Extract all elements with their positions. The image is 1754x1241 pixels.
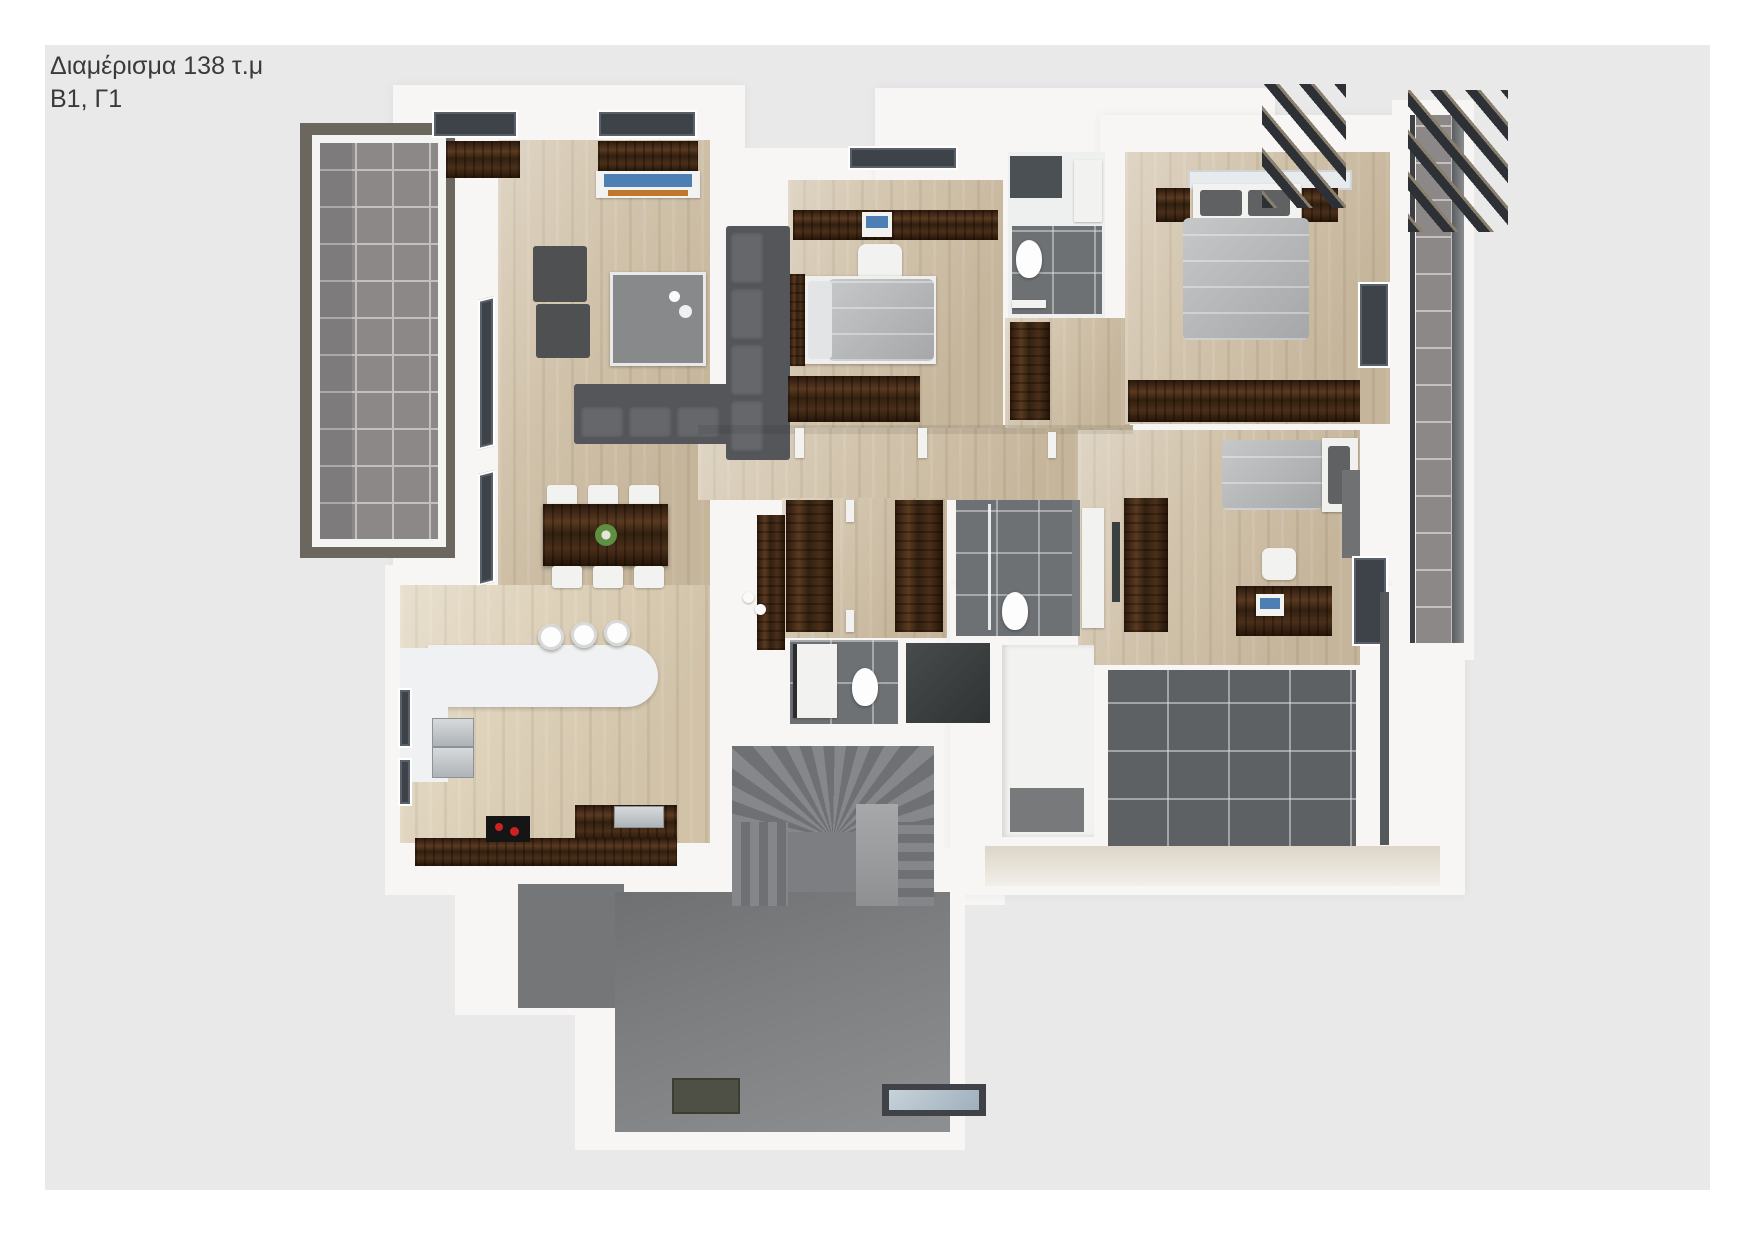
bath1-vanity — [1074, 160, 1102, 222]
dining-chair-6 — [634, 566, 664, 588]
terrace-walkway — [985, 846, 1440, 886]
page-subtitle: Β1, Γ1 — [50, 83, 263, 116]
tv-screen — [604, 174, 692, 187]
roof-access-door — [672, 1078, 740, 1114]
bedroom1-pillow — [808, 281, 832, 359]
cup-2 — [679, 305, 692, 318]
plan-title-block: Διαμέρισμα 138 τ.μ Β1, Γ1 — [50, 50, 263, 116]
sink-room-shade — [1072, 500, 1080, 636]
bedroom1-duvet — [828, 279, 934, 361]
living-west-window-2 — [478, 470, 495, 586]
living-window-left — [432, 110, 518, 138]
stairs-center-wall — [856, 804, 898, 906]
artwork — [608, 190, 688, 196]
bedroom3-laptop — [1256, 594, 1284, 616]
coffee-table — [610, 272, 706, 366]
wall-oven-2 — [432, 747, 474, 778]
wc-vanity — [793, 644, 837, 718]
bedroom3-desk — [1236, 586, 1332, 636]
ottoman-1 — [533, 246, 587, 302]
cup-1 — [669, 291, 680, 302]
bath1-toilet — [1016, 240, 1042, 278]
shower-glass — [988, 504, 991, 630]
kitchen-sink — [614, 806, 664, 828]
bath1-shower — [1010, 156, 1062, 198]
bedroom3-wardrobe — [1124, 498, 1168, 632]
terrace-edge-wall — [1380, 592, 1389, 845]
void-shaft — [906, 643, 990, 723]
pergola-slats-left — [1262, 84, 1346, 208]
skylight-frame — [882, 1084, 986, 1116]
walkin-door-top — [846, 500, 854, 522]
paper-roll-1 — [743, 592, 754, 603]
living-west-window-1 — [478, 296, 495, 450]
bar-stool-3 — [604, 620, 630, 646]
dining-chair-5 — [593, 566, 623, 588]
walkin-door-bottom — [846, 610, 854, 632]
tall-cabinet — [757, 515, 785, 650]
walkin-wardrobe-left — [786, 500, 833, 632]
roof-left — [518, 884, 624, 1008]
bedroom3-chair — [1262, 548, 1296, 580]
bedroom1-headboard — [790, 274, 805, 366]
bedroom3-duvet — [1222, 440, 1322, 510]
master-wardrobe — [1128, 380, 1360, 422]
shower-room-toilet — [1002, 592, 1028, 630]
sink-mirror — [1112, 522, 1120, 602]
walkin-wardrobe-right — [895, 500, 943, 632]
bath1-door — [1012, 300, 1046, 308]
nook-wardrobe — [1010, 322, 1050, 420]
kitchen-window-2 — [398, 758, 412, 806]
master-pillow-1 — [1200, 190, 1242, 216]
page-title: Διαμέρισμα 138 τ.μ — [50, 50, 263, 83]
floor-plan-page: Διαμέρισμα 138 τ.μ Β1, Γ1 — [0, 0, 1754, 1241]
light-well-floor — [1010, 788, 1084, 832]
bedroom1-wardrobe — [788, 376, 920, 422]
bedroom3-shelf — [1342, 470, 1360, 558]
door-leaf-3 — [1048, 432, 1056, 458]
sofa-horizontal — [574, 384, 730, 444]
paper-roll-2 — [755, 604, 766, 615]
master-nightstand-left — [1156, 188, 1190, 222]
table-plant — [595, 524, 617, 546]
skylight-glass — [889, 1090, 979, 1110]
sink-counter — [1082, 508, 1104, 628]
left-balcony-shade — [320, 143, 352, 539]
living-cabinet-left — [446, 141, 520, 178]
master-duvet — [1183, 218, 1309, 340]
stairs-right-treads — [898, 822, 934, 906]
kitchen-base-cabinets — [415, 838, 677, 866]
door-leaf-1 — [795, 428, 804, 458]
bar-stool-2 — [571, 622, 597, 648]
bar-stool-1 — [538, 624, 564, 650]
terrace-tiles — [1108, 670, 1356, 846]
door-leaf-2 — [918, 428, 927, 458]
hallway-wall-shadow — [698, 425, 1133, 434]
bedroom1-laptop — [862, 212, 892, 237]
stairs-left-treads — [732, 822, 788, 906]
dining-chair-4 — [552, 566, 582, 588]
wc-toilet — [852, 668, 878, 706]
bedroom1-window — [848, 146, 958, 170]
living-cabinet-right — [598, 141, 698, 172]
ottoman-2 — [536, 304, 590, 358]
pergola-slats-right — [1408, 90, 1508, 232]
stairs-fan-treads — [732, 746, 934, 832]
living-window-right — [597, 110, 697, 138]
kitchen-peninsula — [428, 645, 658, 707]
wall-oven-1 — [432, 718, 474, 747]
master-balcony-door — [1358, 282, 1390, 368]
cooktop — [486, 816, 530, 842]
bedroom1-desk — [793, 210, 998, 240]
kitchen-window-1 — [398, 688, 412, 748]
